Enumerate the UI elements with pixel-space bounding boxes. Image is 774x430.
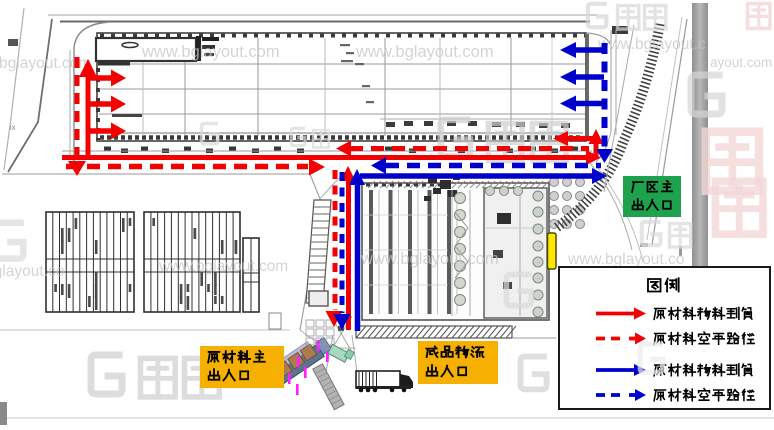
- svg-text:ayout.com: ayout.com: [710, 55, 772, 70]
- svg-text:www.bglayout.com: www.bglayout.com: [360, 250, 499, 268]
- svg-text:www.bglayout.com: www.bglayout.com: [141, 43, 280, 61]
- svg-text:www.bglayout.com: www.bglayout.com: [158, 258, 288, 275]
- svg-text:www.bglayout.com: www.bglayout.com: [355, 43, 494, 61]
- svg-text:IX: IX: [10, 126, 16, 132]
- svg-text:www.bglayout.co: www.bglayout.co: [0, 263, 64, 280]
- svg-text:www.bglayout.c: www.bglayout.c: [597, 36, 706, 53]
- svg-text:www.bglayout.co: www.bglayout.co: [567, 251, 684, 268]
